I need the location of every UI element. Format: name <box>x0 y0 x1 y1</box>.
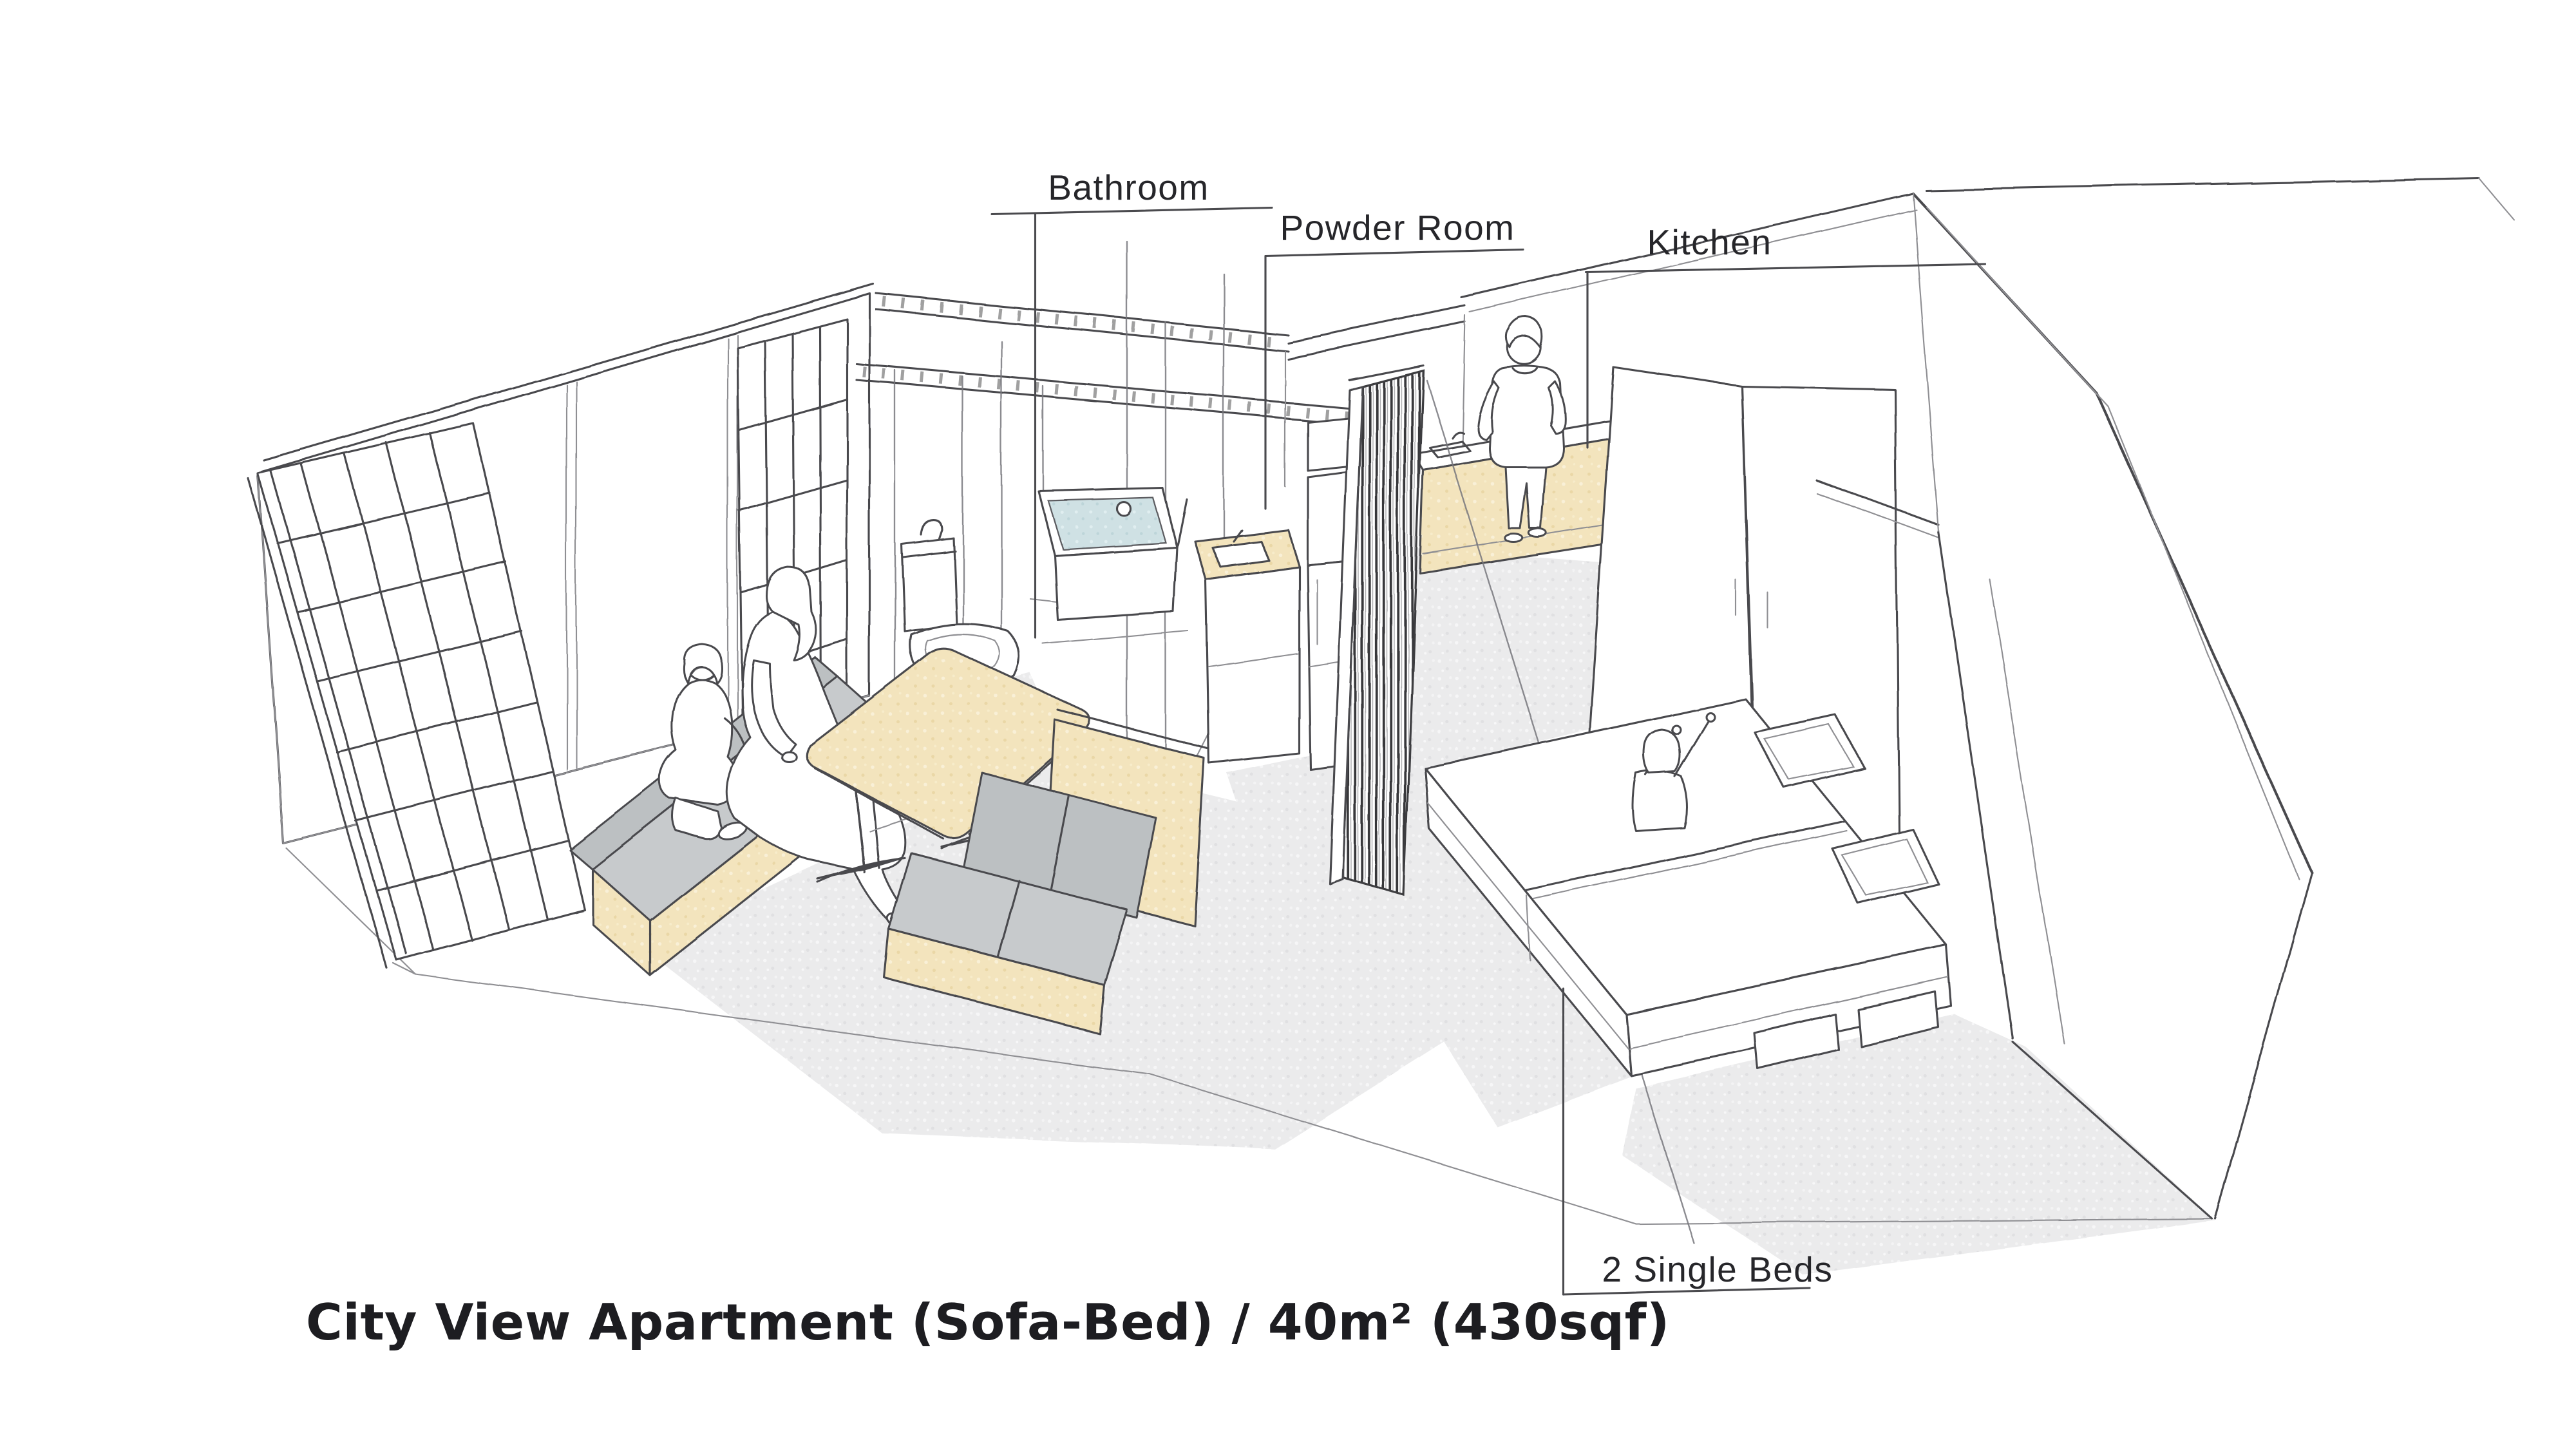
single-beds-label: 2 Single Beds <box>1602 1249 1833 1289</box>
kitchen-label: Kitchen <box>1647 222 1772 262</box>
drawing-title: City View Apartment (Sofa-Bed) / 40m² (4… <box>306 1294 1670 1352</box>
washbasin <box>1195 530 1300 764</box>
bathroom-label: Bathroom <box>1048 167 1209 207</box>
sketch-canvas: Bathroom Powder Room Kitchen 2 Single Be… <box>0 0 2576 1449</box>
powder-room-label: Powder Room <box>1280 208 1515 248</box>
bath-water <box>1048 498 1166 549</box>
apartment-sketch: Bathroom Powder Room Kitchen 2 Single Be… <box>0 0 2576 1449</box>
floor-texture <box>641 547 2215 1275</box>
linework <box>248 179 2515 1276</box>
